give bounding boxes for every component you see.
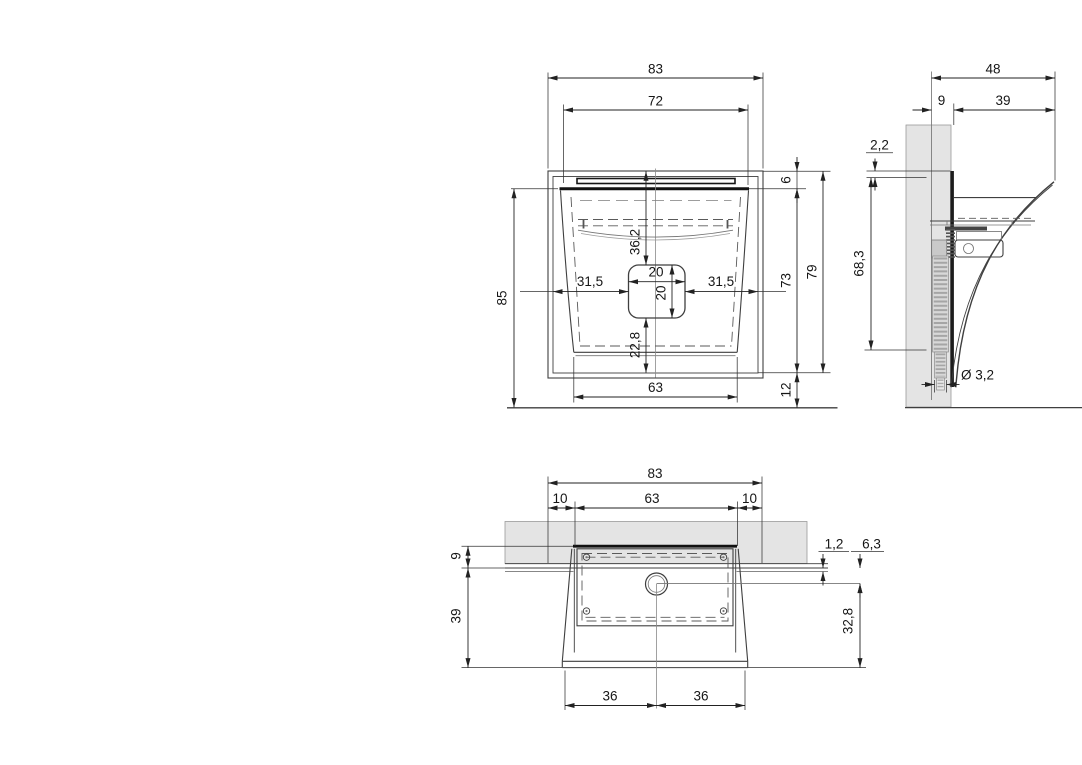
front-dim-bottom-width: 63 [648, 380, 663, 395]
funnel-slant-left [562, 549, 572, 662]
front-dim-hole-width: 20 [648, 265, 663, 280]
side-dim-lip-thickness: 2,2 [870, 138, 889, 153]
front-dim-base-offset: 12 [779, 382, 794, 397]
front-dim-hole-top-offset: 36,2 [628, 229, 643, 255]
bottom-dim-cutout-width: 63 [644, 491, 659, 506]
funnel-slant-right [738, 549, 748, 662]
side-view: 48 9 39 2,2 68,3 Ø 3,2 [852, 62, 1082, 408]
corrugated-hose [933, 256, 949, 390]
bottom-dim-plate-thickness: 1,2 [825, 537, 844, 552]
bottom-plate [562, 661, 747, 667]
front-dim-overall-width: 83 [648, 62, 663, 77]
bottom-view: 83 10 63 10 9 39 1,2 6,3 [449, 466, 885, 710]
side-dim-hose-diameter: Ø 3,2 [961, 368, 994, 383]
front-dim-rim-offset: 6 [779, 176, 794, 184]
front-dim-hole-bottom-offset: 22,8 [628, 332, 643, 358]
front-view: 83 72 85 6 73 79 12 [495, 62, 838, 408]
trap-nut [964, 244, 974, 254]
bottom-dim-overlap-left: 10 [552, 491, 567, 506]
bottom-dim-half-width-left: 36 [602, 689, 617, 704]
front-dim-hole-offset-right: 31,5 [708, 274, 734, 289]
funnel-side-right [737, 191, 748, 353]
front-dim-hole-height: 20 [654, 285, 669, 300]
front-dim-top-width: 72 [648, 94, 663, 109]
bottom-dim-rim-depth: 9 [449, 552, 464, 560]
tailpiece [957, 232, 1002, 241]
front-dim-overall-height: 85 [495, 290, 510, 305]
side-dim-overall-depth: 48 [985, 62, 1000, 77]
bottom-dim-overlap-right: 10 [742, 491, 757, 506]
front-dim-hole-offset-left: 31,5 [577, 274, 603, 289]
side-dim-wall-recess: 9 [938, 93, 946, 108]
bottom-dim-body-depth: 39 [449, 608, 464, 623]
side-dim-back-height: 68,3 [852, 250, 867, 276]
front-dim-inner-height: 73 [779, 273, 794, 288]
technical-drawing-sheet: 83 72 85 6 73 79 12 [0, 0, 1082, 765]
front-dim-body-height: 79 [805, 264, 820, 279]
hose-elbow [932, 240, 947, 258]
back-plate [950, 171, 954, 387]
bottom-dim-drain-center-offset: 6,3 [862, 537, 881, 552]
front-curve-inner [951, 185, 1052, 387]
bottom-dim-overall-width: 83 [647, 466, 662, 481]
bottom-dim-inner-depth: 32,8 [841, 608, 856, 634]
top-rail [577, 179, 735, 184]
bottom-dim-half-width-right: 36 [693, 689, 708, 704]
front-curve-outer [956, 182, 1054, 387]
side-dim-front-depth: 39 [995, 93, 1010, 108]
